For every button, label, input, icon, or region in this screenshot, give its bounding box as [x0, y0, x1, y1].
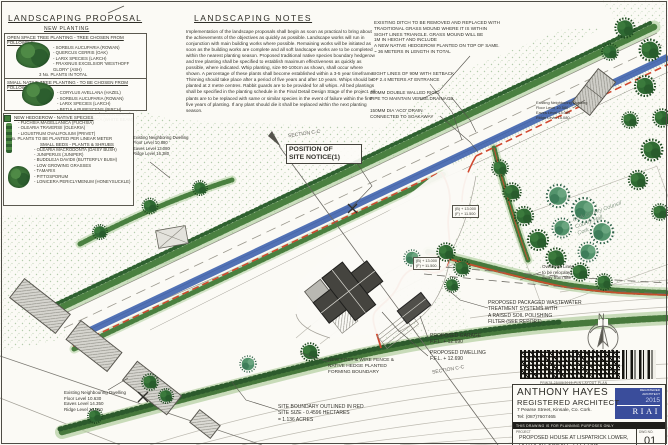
fence-label: NEW POST & WIRE FENCE & NATIVE HEDGE PLA… [328, 358, 394, 376]
architect-phone: Tel: (087)7607465 [517, 415, 556, 421]
levels-box: (B) + 13.000 (F) + 11.500 [452, 205, 479, 218]
project-label: PROJECT [516, 430, 531, 434]
north-label: N [598, 312, 605, 323]
pipe-note: 300MM DOUBLE WALLED RIGID PIPE TO MAINTA… [370, 90, 453, 101]
notes-body: Implementation of the landscape proposal… [186, 29, 377, 114]
garage-label: PROPOSED GARAGE F.F.L. + 12.690 [430, 333, 481, 346]
riai-badge-org: RIAI [617, 405, 660, 416]
overhead-lines-label: Overhead Lines to be relocated away from… [542, 264, 574, 281]
boundary-label: SITE BOUNDARY OUTLINED IN RED SITE SIZE … [278, 404, 364, 423]
project-line1: PROPOSED HOUSE AT LISPATRICK LOWER, [519, 435, 628, 442]
site-plan-sheet: LANDSCAPING PROPOSAL NEW PLANTING OPEN S… [0, 0, 668, 445]
architect-address: 7 Pearse Street, Kinsale, Co. Cork. [517, 408, 592, 414]
riai-badge-reg: REGISTERED ARCHITECT [617, 389, 660, 396]
species-item: - LONICERA PERICLYMENUM (HONEYSUCKLE) [34, 179, 131, 184]
dwg-no-value: 01 [644, 435, 656, 445]
dwg-no-cell: DWG NO. 01 [636, 429, 665, 445]
title-block: ANTHONY HAYES REGISTERED ARCHITECT 7 Pea… [512, 384, 666, 445]
levels-box: (B) + 13.000 (F) + 11.500 [413, 257, 440, 270]
ditch-note: EXISTING DITCH TO BE REMOVED AND REPLACE… [374, 20, 500, 55]
open-space-total: 3 No. PLANTS IN TOTAL [39, 72, 144, 77]
dwelling-info-bottom: Existing Neighbouring Dwelling Floor Lev… [64, 390, 126, 413]
dwelling-info-right: Existing Neighboring Dwelling Floor Leve… [536, 101, 587, 121]
dwg-no-label: DWG NO. [639, 430, 653, 434]
site-notice-label: POSITION OF SITE NOTICE(1) [286, 144, 362, 164]
tree-photo-icon [16, 42, 50, 68]
species-item: - FRAXINUS EXCELSIOR 'WESTHOFF GLORY' (A… [53, 61, 144, 72]
aco-drain-note: 150MM DIA 'ACO' DRAIN CONNECTED TO SOAKA… [370, 108, 433, 119]
barcode [520, 350, 620, 379]
notes-title: LANDSCAPING NOTES [194, 13, 312, 24]
hedgerow-swatch-icon [4, 115, 11, 122]
proposal-title: LANDSCAPING PROPOSAL [8, 13, 142, 24]
wastewater-label: PROPOSED PACKAGED WASTEWATER TREATMENT S… [488, 300, 582, 325]
tree-photo-icon [22, 82, 54, 106]
planning-purposes-bar: THIS DRAWING IS FOR PLANNING PURPOSES ON… [513, 422, 665, 429]
sight-lines-note: SIGHT LINES OF 90M WITH SETBACK OF 2.4 M… [372, 71, 454, 82]
dwelling-info-left: Existing Neighboring Dwelling Floor Leve… [133, 135, 188, 156]
riai-badge: REGISTERED ARCHITECT 2015 RIAI [615, 388, 662, 419]
architect-role: REGISTERED ARCHITECT [517, 398, 620, 407]
riai-badge-year: 2015 [617, 397, 660, 404]
hedgerow-beds-panel: NEW HEDGEROW - NATIVE SPECIES - FUCHSIA … [3, 113, 134, 206]
barcode-stripes [622, 350, 656, 379]
shrub-photo-icon [8, 166, 30, 188]
proposal-subtitle: NEW PLANTING [44, 26, 89, 32]
dwelling-label: PROPOSED DWELLING F.F.L. + 12.690 [430, 350, 486, 363]
hedge-strip-icon [6, 123, 12, 153]
